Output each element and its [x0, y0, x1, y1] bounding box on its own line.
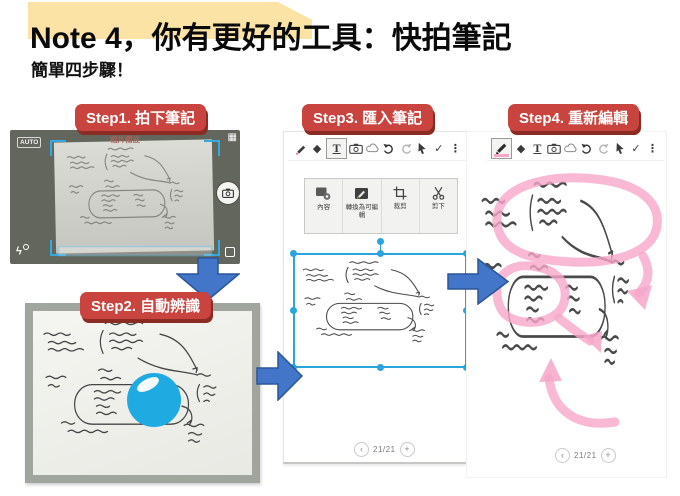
processing-spinner	[127, 373, 181, 427]
more-icon[interactable]: ⋮	[645, 140, 660, 157]
handwriting-sketch	[60, 141, 208, 250]
menu-item-cut[interactable]: 剪下	[420, 179, 457, 233]
undo-icon[interactable]	[382, 140, 397, 157]
title-emphasis: 快拍筆記	[392, 22, 512, 55]
redo-icon[interactable]	[596, 140, 611, 157]
grid-icon[interactable]: ▦	[228, 132, 237, 143]
done-icon[interactable]: ✓	[431, 140, 446, 157]
cloud-tool-icon[interactable]	[563, 140, 578, 157]
prev-page-button[interactable]: ‹	[354, 442, 369, 457]
handwriting-sketch	[295, 257, 461, 361]
page-number: 21/21	[373, 445, 396, 454]
title-text: Note 4，你有更好的工具：	[30, 22, 392, 55]
camera-screenshot: AUTO 相片備註 ▦ ϟ	[10, 130, 240, 264]
step4-label: Step4. 重新編輯	[508, 104, 639, 131]
scissors-icon	[432, 186, 445, 200]
subtitle: 簡單四步驟！	[31, 56, 133, 81]
eraser-tool-icon[interactable]: ◆	[310, 140, 325, 157]
menu-item-convert-editable[interactable]: 轉換為可編輯	[343, 179, 381, 233]
convert-editable-icon	[354, 186, 369, 201]
page-title: Note 4，你有更好的工具：快拍筆記	[30, 13, 512, 57]
menu-item-crop[interactable]: 裁剪	[382, 179, 420, 233]
selection-tool-icon[interactable]	[612, 140, 627, 157]
flash-icon[interactable]: ϟ	[16, 244, 29, 258]
camera-mode-title: 相片備註	[10, 134, 240, 145]
pink-annotations	[467, 160, 666, 465]
snote-toolbar: ◆ T ✓ ⋮	[288, 136, 468, 161]
cloud-tool-icon[interactable]	[365, 140, 380, 157]
selection-tool-icon[interactable]	[415, 140, 430, 157]
resize-handle[interactable]	[377, 364, 384, 371]
menu-item-content[interactable]: 內容	[305, 179, 343, 233]
arrow-right-icon	[256, 351, 303, 401]
pen-tool-icon[interactable]	[293, 140, 308, 157]
captured-paper	[54, 139, 214, 253]
camera-tool-icon[interactable]	[546, 140, 561, 157]
resize-handle[interactable]	[290, 250, 297, 257]
image-context-menu: 內容 轉換為可編輯 裁剪 剪下	[304, 178, 458, 234]
snote-import-screenshot: ◆ T ✓ ⋮ 內容	[283, 131, 473, 464]
image-settings-icon	[315, 186, 332, 201]
camera-tool-icon[interactable]	[349, 140, 364, 157]
step3-label: Step3. 匯入筆記	[302, 104, 433, 131]
snote-toolbar: ◆ T ✓ ⋮	[487, 136, 664, 161]
arrow-right-icon	[447, 258, 509, 305]
eraser-tool-icon[interactable]: ◆	[513, 140, 528, 157]
resize-handle[interactable]	[290, 307, 297, 314]
imported-note-selection[interactable]	[293, 253, 467, 368]
done-icon[interactable]: ✓	[629, 140, 644, 157]
shutter-button[interactable]	[217, 182, 239, 204]
step1-label: Step1. 拍下筆記	[75, 104, 206, 131]
rotate-handle[interactable]	[377, 238, 384, 245]
pen-tool-icon[interactable]	[491, 138, 512, 159]
redo-icon[interactable]	[398, 140, 413, 157]
slide: Note 4，你有更好的工具：快拍筆記 簡單四步驟！ Step1. 拍下筆記 S…	[0, 0, 680, 496]
camera-icon	[222, 188, 234, 198]
page-indicator: ‹ 21/21 +	[354, 442, 415, 457]
caption-blurred-text	[58, 246, 212, 256]
text-tool-icon[interactable]: T	[326, 138, 347, 159]
resize-handle[interactable]	[377, 250, 384, 257]
add-page-button[interactable]: +	[400, 442, 415, 457]
gallery-icon[interactable]	[225, 247, 235, 257]
more-icon[interactable]: ⋮	[448, 140, 463, 157]
recognized-photo	[25, 303, 260, 483]
text-tool-icon[interactable]: T	[530, 140, 545, 157]
undo-icon[interactable]	[579, 140, 594, 157]
crop-icon	[393, 186, 407, 200]
step2-label: Step2. 自動辨識	[80, 292, 211, 319]
